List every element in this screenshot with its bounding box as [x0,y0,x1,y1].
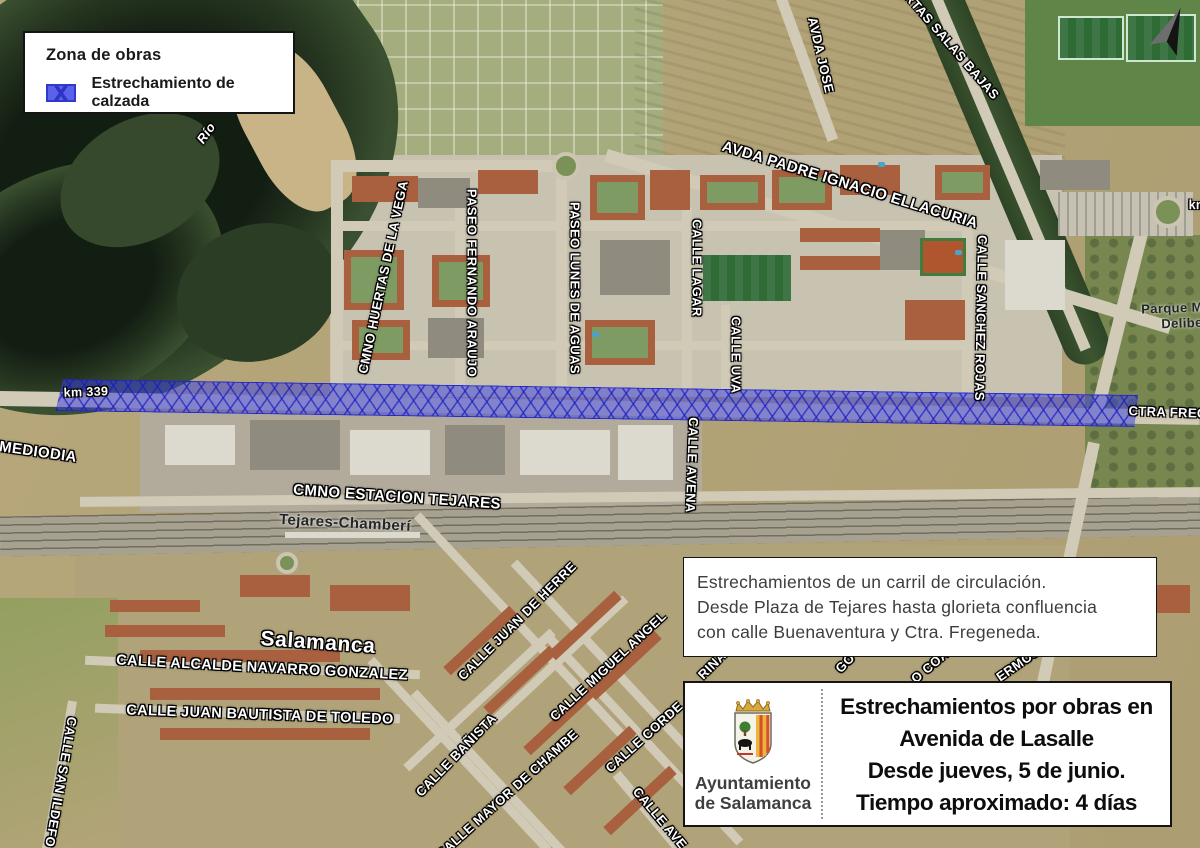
swimming-pool [878,162,885,167]
description-line: con calle Buenaventura y Ctra. Fregeneda… [697,622,1156,643]
warehouse [250,420,340,470]
city-council-branding: Ayuntamiento de Salamanca [685,683,821,825]
sports-field [703,255,791,301]
roundabout [276,552,298,574]
announcement-line: Estrechamientos por obras en [840,691,1153,722]
warehouse [618,425,673,480]
housing-row [240,575,310,597]
warehouse [165,425,235,465]
street-label-mediodia: MEDIODIA [0,438,78,466]
building [800,256,880,270]
legend-item: Estrechamiento de calzada [46,75,293,111]
city-council-name: Ayuntamiento de Salamanca [695,773,812,813]
building [700,175,765,210]
street-label-ctra-fregeneda: CTRA FREG [1128,403,1200,421]
announcement-line: Avenida de Lasalle [899,723,1094,754]
building [800,228,880,242]
legend-title: Zona de obras [46,46,293,65]
legend-item-label: Estrechamiento de calzada [91,75,293,111]
building [585,320,655,365]
building [418,178,470,208]
building [600,240,670,295]
description-line: Estrechamientos de un carril de circulac… [697,572,1156,593]
map-road [331,160,343,395]
zone-swatch-icon [46,84,76,102]
announcement-text: Estrechamientos por obras en Avenida de … [823,683,1170,825]
description-panel: Estrechamientos de un carril de circulac… [683,557,1157,657]
place-label-parque-line1: Parque M [1141,299,1200,316]
legend-panel: Zona de obras Estrechamiento de calzada [23,31,295,114]
building [590,175,645,220]
roundabout [1152,196,1184,228]
street-label-km-339: km 339 [63,384,108,400]
building [880,230,925,270]
place-label-parque-line2: Delibe [1161,315,1200,331]
building [478,170,538,194]
street-label-fernando-araujo: PASEO FERNANDO ARAUJO [465,189,480,377]
building [1005,240,1065,310]
announcement-panel: Ayuntamiento de Salamanca Estrechamiento… [683,681,1172,827]
announcement-line: Desde jueves, 5 de junio. [868,755,1126,786]
description-line: Desde Plaza de Tejares hasta glorieta co… [697,597,1156,618]
swimming-pool [592,332,599,337]
building [935,165,990,200]
salamanca-coat-of-arms-icon [726,697,780,769]
street-label-sanchez-rojas: CALLE SANCHEZ ROJAS [972,235,990,401]
street-label-calle-lagar: CALLE LAGAR [690,219,705,317]
warehouse [350,430,430,475]
building [650,170,690,210]
street-label-calle-uva: CALLE UVA [729,316,744,393]
housing-row [105,625,225,637]
building [905,300,965,340]
swimming-pool [955,250,962,255]
roundabout [552,152,580,180]
tennis-courts [920,238,966,276]
housing-row [110,600,200,612]
satellite-map: Río AVDA JOSE RTAS SALAS BAJAS AVDA PADR… [0,0,1200,848]
housing-row [160,728,370,740]
street-label-km-marker: km [1189,198,1200,212]
soccer-field [1058,16,1124,60]
announcement-line: Tiempo aproximado: 4 días [856,787,1137,818]
street-label-lunes-de-aguas: PASEO LUNES DE AGUAS [568,202,583,374]
building [432,255,490,307]
housing-row [330,585,410,611]
building [1040,160,1110,190]
warehouse [520,430,610,475]
warehouse [445,425,505,475]
map-road [556,166,567,396]
housing-row [150,688,380,700]
